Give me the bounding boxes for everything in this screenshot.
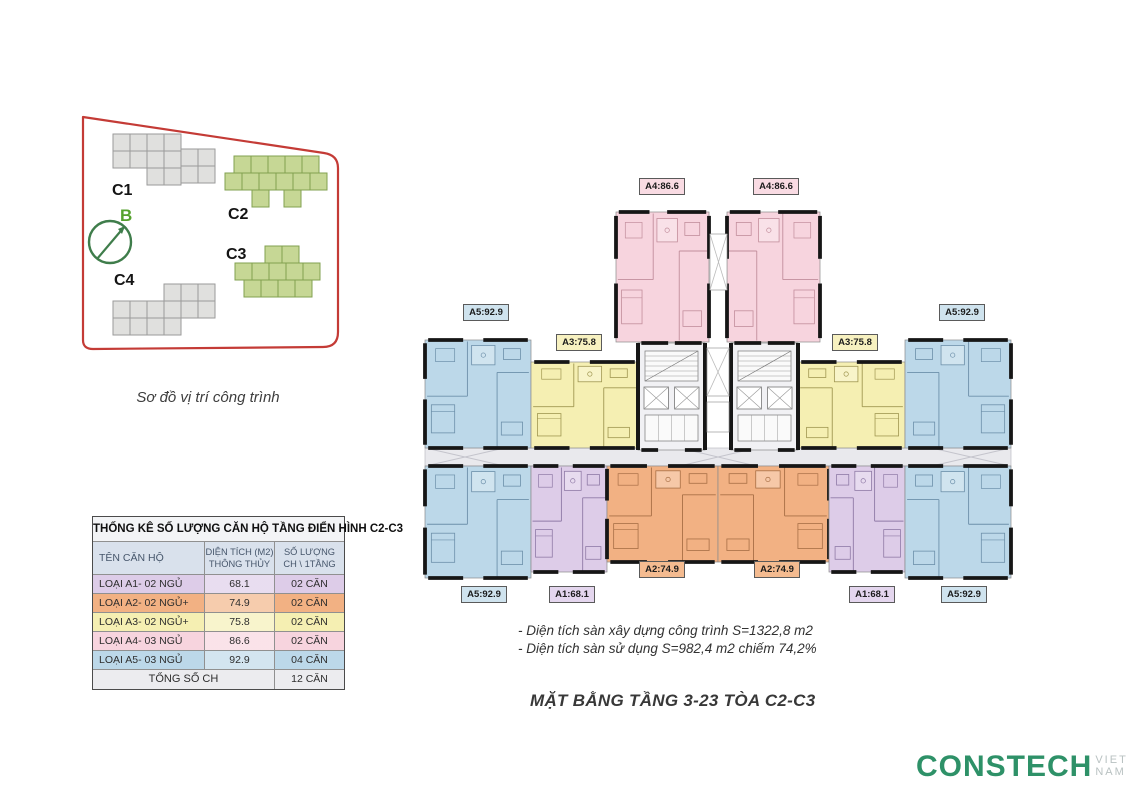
- row-count: 02 CĂN: [274, 632, 344, 650]
- column-header-name: TÊN CĂN HỘ: [93, 542, 204, 574]
- unit-label-a3: A3:75.8: [832, 334, 878, 351]
- building-label-C1: C1: [112, 182, 132, 200]
- column-header-area: DIỆN TÍCH (M2) THÔNG THỦY: [204, 542, 274, 574]
- total-count: 12 CĂN: [274, 670, 344, 689]
- row-area: 86.6: [204, 632, 274, 650]
- row-name: LOẠI A1- 02 NGỦ: [93, 575, 204, 593]
- logo-brand: CONSTECH: [916, 750, 1092, 784]
- row-count: 04 CĂN: [274, 651, 344, 669]
- floor-plan: [422, 156, 1022, 626]
- unit-label-a4: A4:86.6: [753, 178, 799, 195]
- table-row-a3: LOẠI A3- 02 NGỦ+75.802 CĂN: [93, 612, 344, 631]
- logo: CONSTECH VIET NAM: [916, 750, 1132, 784]
- plan-notes: - Diện tích sàn xây dựng công trình S=13…: [518, 622, 817, 657]
- row-name: LOẠI A3- 02 NGỦ+: [93, 613, 204, 631]
- building-label-C4: C4: [114, 272, 134, 290]
- table-row-a1: LOẠI A1- 02 NGỦ68.102 CĂN: [93, 574, 344, 593]
- table-rows: LOẠI A1- 02 NGỦ68.102 CĂNLOẠI A2- 02 NGỦ…: [93, 574, 344, 669]
- table-header: TÊN CĂN HỘ DIỆN TÍCH (M2) THÔNG THỦY SỐ …: [93, 541, 344, 574]
- unit-label-a5: A5:92.9: [939, 304, 985, 321]
- row-count: 02 CĂN: [274, 613, 344, 631]
- site-map-drawing: [68, 98, 368, 378]
- column-header-count: SỐ LƯỢNG CH \ 1TẦNG: [274, 542, 344, 574]
- site-map: C1C2C3C4 B: [68, 98, 368, 378]
- row-area: 68.1: [204, 575, 274, 593]
- stats-table: THỐNG KÊ SỐ LƯỢNG CĂN HỘ TẦNG ĐIỂN HÌNH …: [92, 516, 345, 690]
- row-name: LOẠI A2- 02 NGỦ+: [93, 594, 204, 612]
- floor-plan-drawing: [422, 156, 1022, 626]
- unit-label-a3: A3:75.8: [556, 334, 602, 351]
- site-map-caption: Sơ đồ vị trí công trình: [108, 389, 308, 406]
- unit-label-a5: A5:92.9: [461, 586, 507, 603]
- table-title: THỐNG KÊ SỐ LƯỢNG CĂN HỘ TẦNG ĐIỂN HÌNH …: [93, 517, 344, 541]
- row-name: LOẠI A4- 03 NGỦ: [93, 632, 204, 650]
- building-label-C3: C3: [226, 246, 246, 264]
- table-row-a5: LOẠI A5- 03 NGỦ92.904 CĂN: [93, 650, 344, 669]
- row-area: 74.9: [204, 594, 274, 612]
- unit-label-a5: A5:92.9: [463, 304, 509, 321]
- table-row-a4: LOẠI A4- 03 NGỦ86.602 CĂN: [93, 631, 344, 650]
- unit-label-a2: A2:74.9: [754, 561, 800, 578]
- logo-suffix: VIET NAM: [1095, 754, 1132, 778]
- unit-label-a1: A1:68.1: [849, 586, 895, 603]
- unit-label-a1: A1:68.1: [549, 586, 595, 603]
- total-label: TỔNG SỐ CH: [93, 670, 274, 689]
- row-name: LOẠI A5- 03 NGỦ: [93, 651, 204, 669]
- row-count: 02 CĂN: [274, 594, 344, 612]
- row-count: 02 CĂN: [274, 575, 344, 593]
- building-label-C2: C2: [228, 206, 248, 224]
- plan-title: MẶT BẰNG TẦNG 3-23 TÒA C2-C3: [530, 691, 815, 711]
- row-area: 75.8: [204, 613, 274, 631]
- note-line: - Diện tích sàn sử dụng S=982,4 m2 chiếm…: [518, 640, 817, 658]
- row-area: 92.9: [204, 651, 274, 669]
- table-row-a2: LOẠI A2- 02 NGỦ+74.902 CĂN: [93, 593, 344, 612]
- unit-label-a4: A4:86.6: [639, 178, 685, 195]
- table-total-row: TỔNG SỐ CH 12 CĂN: [93, 669, 344, 689]
- unit-label-a5: A5:92.9: [941, 586, 987, 603]
- unit-label-a2: A2:74.9: [639, 561, 685, 578]
- page: C1C2C3C4 B Sơ đồ vị trí công trình THỐNG…: [0, 0, 1132, 800]
- note-line: - Diện tích sàn xây dựng công trình S=13…: [518, 622, 817, 640]
- compass-north-label: B: [120, 206, 132, 226]
